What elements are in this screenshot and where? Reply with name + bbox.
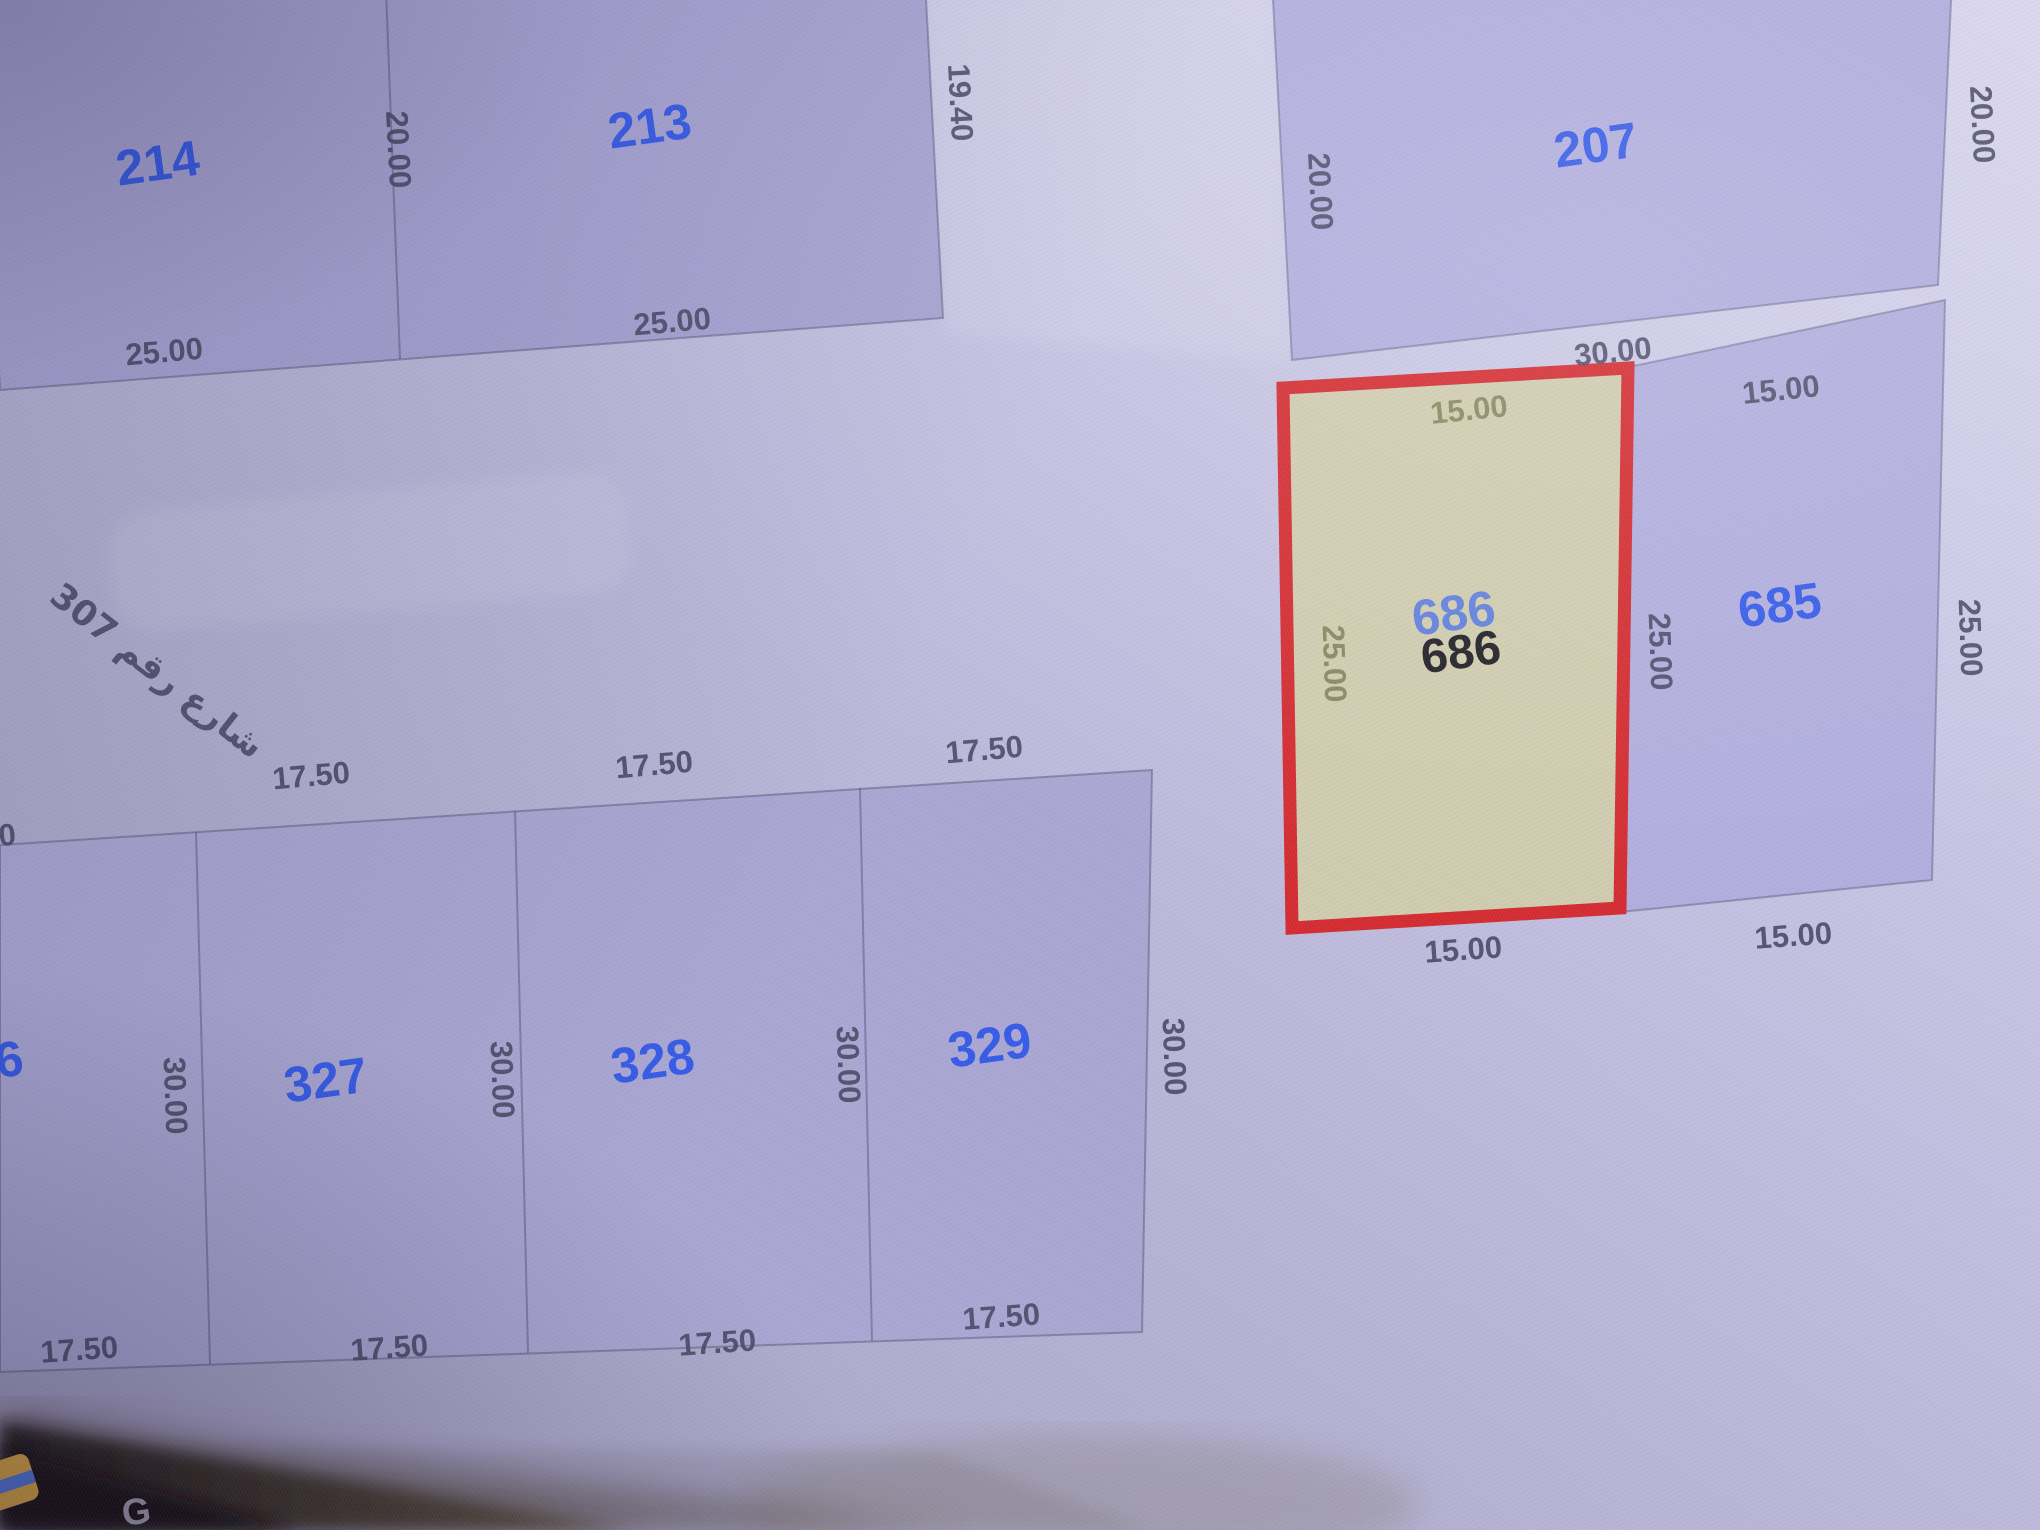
dim-25-between-686-685: 25.00: [1642, 612, 1680, 691]
screen-photo: 214 213 20.00 19.40 25.00 25.00 207 20.0…: [0, 0, 2040, 1530]
dim-30-side-328: 30.00: [830, 1025, 868, 1104]
dim-15-bottom-685: 15.00: [1753, 915, 1833, 955]
parcel-label-207: 207: [1550, 112, 1640, 179]
dim-19-40-right-of-213: 19.40: [941, 63, 980, 142]
dim-17-top-327: 17.50: [271, 755, 351, 797]
dim-25-right-685: 25.00: [1952, 598, 1990, 677]
parcel-label-686: 686: [1417, 621, 1504, 685]
dim-17-bottom-326: 17.50: [39, 1329, 119, 1369]
dim-20-left-of-207: 20.00: [1301, 152, 1340, 231]
dim-17-top-329: 17.50: [944, 729, 1024, 771]
dim-30-side-329: 30.00: [1156, 1017, 1194, 1096]
cadastral-map: 214 213 20.00 19.40 25.00 25.00 207 20.0…: [0, 0, 2040, 1530]
parcel-label-213: 213: [604, 93, 694, 160]
parcel-label-327: 327: [280, 1047, 370, 1114]
parcel-label-329: 329: [944, 1012, 1034, 1079]
parcel-label-328: 328: [607, 1028, 697, 1095]
dim-25-bottom-213: 25.00: [632, 301, 712, 343]
dim-30-side-327: 30.00: [484, 1040, 522, 1119]
dim-25-left-686: 25.00: [1316, 624, 1354, 703]
g-logo-icon[interactable]: G: [119, 1489, 153, 1530]
parcel-label-214: 214: [112, 130, 203, 197]
parcel-label-685: 685: [1734, 572, 1824, 639]
dim-15-bottom-686: 15.00: [1423, 929, 1503, 969]
dim-17-bottom-329: 17.50: [961, 1296, 1041, 1336]
dim-17-top-328: 17.50: [614, 744, 694, 786]
dim-17-bottom-328: 17.50: [677, 1322, 757, 1362]
dim-20-right-edge: 20.00: [1963, 85, 2002, 164]
road-vertical-light-band: [925, 0, 1292, 362]
dim-30-side-326: 30.00: [157, 1056, 195, 1135]
dim-20-between-214-213: 20.00: [379, 110, 418, 189]
dim-17-bottom-327: 17.50: [349, 1327, 429, 1367]
dim-25-bottom-214: 25.00: [124, 331, 204, 373]
